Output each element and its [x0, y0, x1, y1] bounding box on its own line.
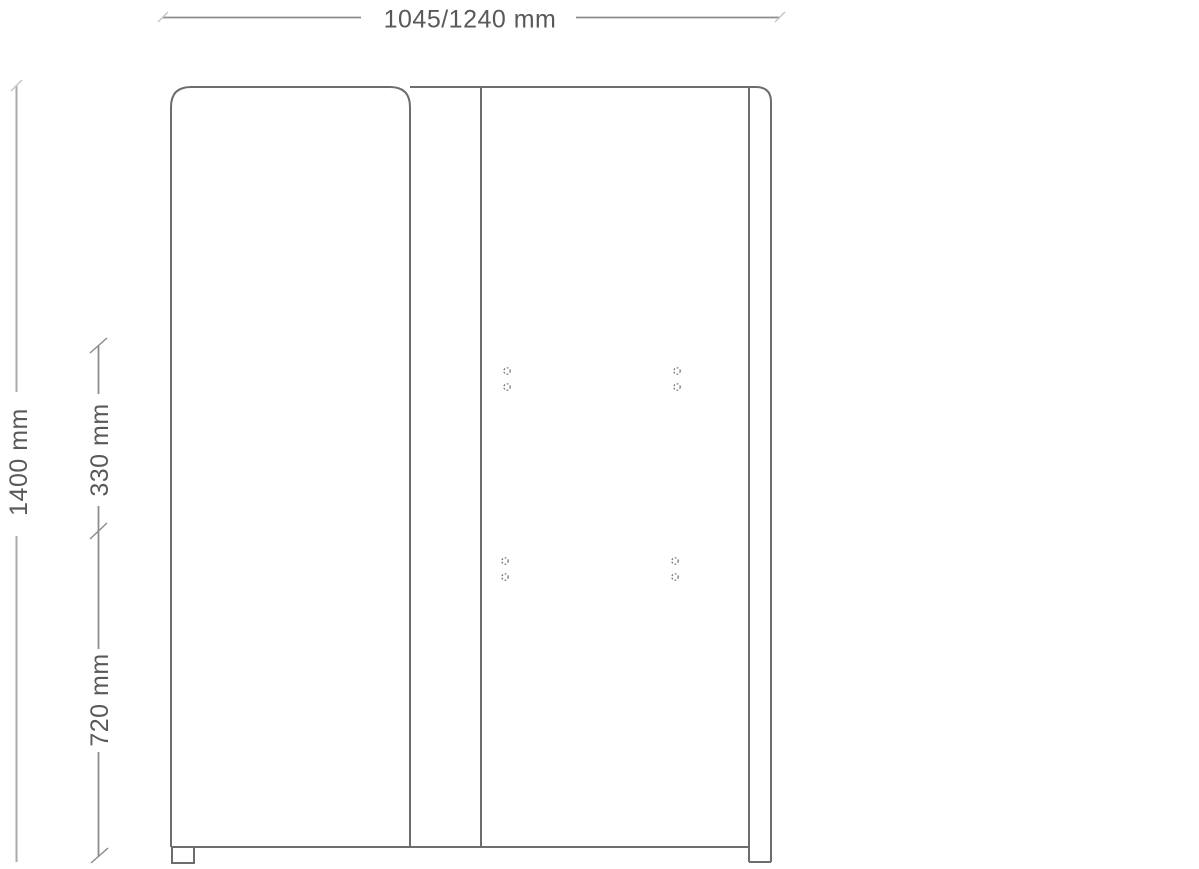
mounting-hole — [672, 574, 678, 580]
cabinet-outline — [171, 87, 771, 863]
technical-drawing-canvas: 1045/1240 mm 1400 mm 330 mm 720 mm — [0, 0, 1199, 869]
dimension-drawing: 1045/1240 mm 1400 mm 330 mm 720 mm — [0, 0, 1199, 869]
mounting-hole — [504, 368, 510, 374]
cabinet-left-foot — [172, 847, 194, 863]
mounting-hole — [674, 384, 680, 390]
overall-height-dimension: 1400 mm — [5, 80, 33, 862]
mounting-hole — [672, 558, 678, 564]
height-dimension-label: 1400 mm — [5, 408, 33, 516]
mounting-hole — [502, 574, 508, 580]
mounting-holes — [502, 368, 680, 580]
lower-segment-label: 720 mm — [86, 653, 114, 746]
segment-dimensions: 330 mm 720 mm — [86, 338, 114, 863]
upper-segment-label: 330 mm — [86, 403, 114, 496]
width-dimension-label: 1045/1240 mm — [384, 6, 557, 34]
width-dimension: 1045/1240 mm — [158, 6, 785, 34]
mounting-hole — [504, 384, 510, 390]
mounting-hole — [674, 368, 680, 374]
mounting-hole — [502, 558, 508, 564]
cabinet-top-and-right-edge — [410, 87, 771, 862]
cabinet-left-panel — [171, 87, 410, 847]
segment-tick-bottom — [91, 848, 108, 863]
